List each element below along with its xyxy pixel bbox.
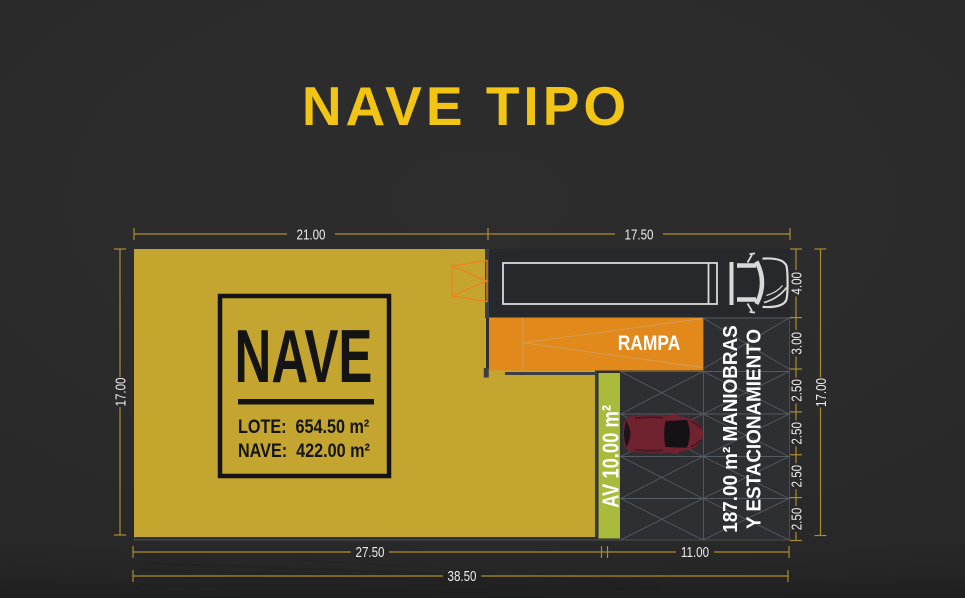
svg-text:4.00: 4.00: [788, 272, 805, 295]
svg-text:2.50: 2.50: [788, 379, 805, 402]
svg-text:17.00: 17.00: [813, 378, 830, 407]
svg-text:2.50: 2.50: [788, 422, 805, 445]
svg-text:17.50: 17.50: [624, 226, 653, 243]
svg-text:187.00 m² MANIOBRAS: 187.00 m² MANIOBRAS: [719, 325, 742, 532]
svg-text:RAMPA: RAMPA: [618, 333, 681, 356]
svg-text:3.00: 3.00: [788, 332, 805, 355]
svg-text:21.00: 21.00: [296, 226, 325, 243]
svg-text:17.00: 17.00: [112, 377, 129, 406]
svg-text:Y ESTACIONAMIENTO: Y ESTACIONAMIENTO: [743, 329, 766, 529]
svg-text:27.50: 27.50: [355, 544, 384, 561]
svg-text:2.50: 2.50: [788, 508, 805, 531]
svg-text:NAVE: NAVE: [235, 314, 373, 398]
svg-text:2.50: 2.50: [788, 465, 805, 488]
svg-text:NAVE: 422.00 m²: NAVE: 422.00 m²: [238, 440, 370, 462]
svg-text:38.50: 38.50: [447, 568, 476, 585]
svg-text:LOTE: 654.50 m²: LOTE: 654.50 m²: [238, 416, 369, 438]
svg-text:11.00: 11.00: [681, 544, 709, 561]
